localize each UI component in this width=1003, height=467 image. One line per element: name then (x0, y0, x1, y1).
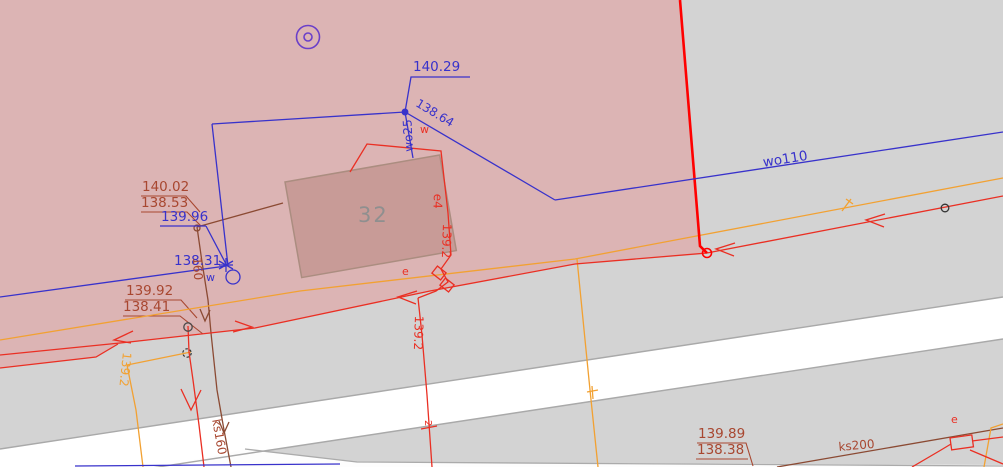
water-valve-symbol (402, 109, 408, 115)
telecom-tick (842, 199, 851, 211)
map-geometry-layer (0, 0, 1003, 467)
power-line-se (912, 444, 951, 467)
power-cabinet-symbol (950, 435, 973, 450)
power-branch-south (418, 298, 432, 467)
power-line-se (972, 437, 1003, 441)
map-canvas[interactable]: 32 140.29 138.64 wo25 wo110 138.31 139.9… (0, 0, 1003, 467)
power-arrow-down (181, 389, 201, 410)
